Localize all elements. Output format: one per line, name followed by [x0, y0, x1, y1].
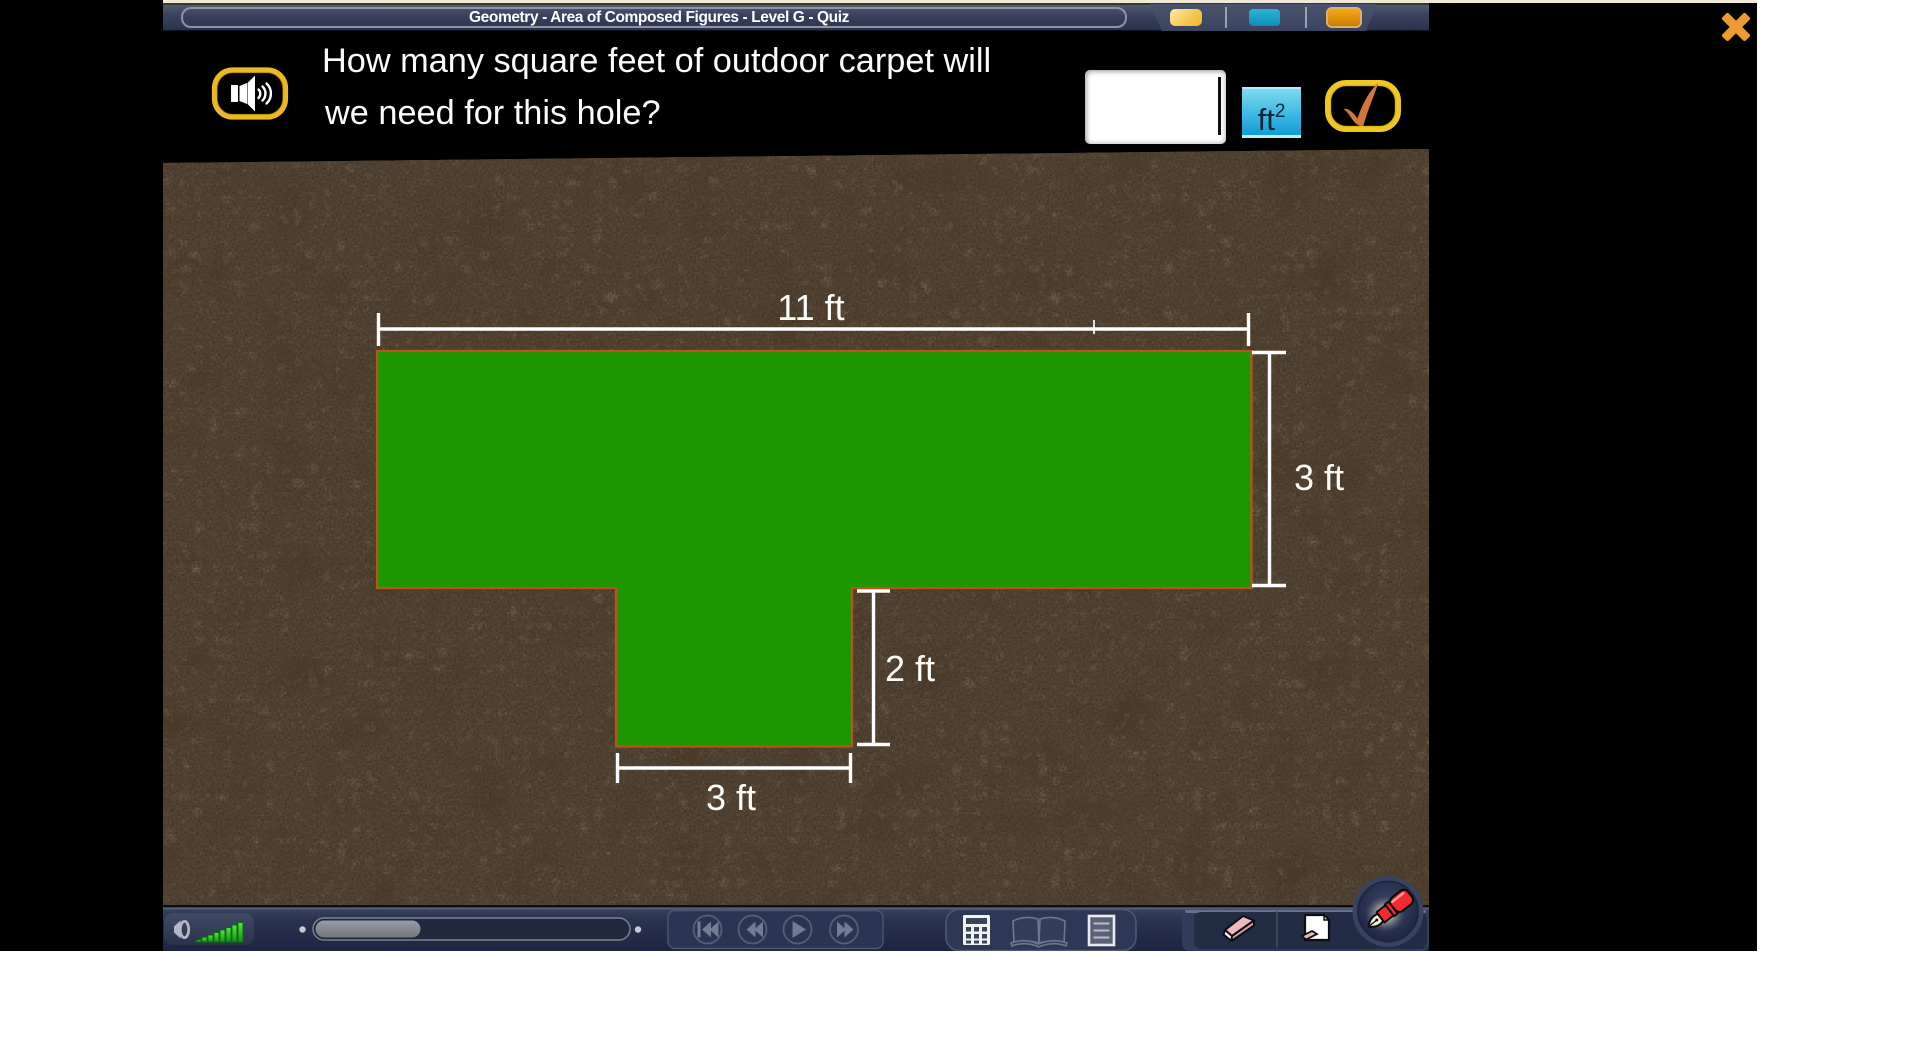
svg-text:3 ft: 3 ft	[1294, 457, 1344, 498]
svg-text:3 ft: 3 ft	[706, 777, 756, 818]
svg-text:2 ft: 2 ft	[885, 648, 935, 689]
svg-text:11 ft: 11 ft	[777, 287, 844, 328]
